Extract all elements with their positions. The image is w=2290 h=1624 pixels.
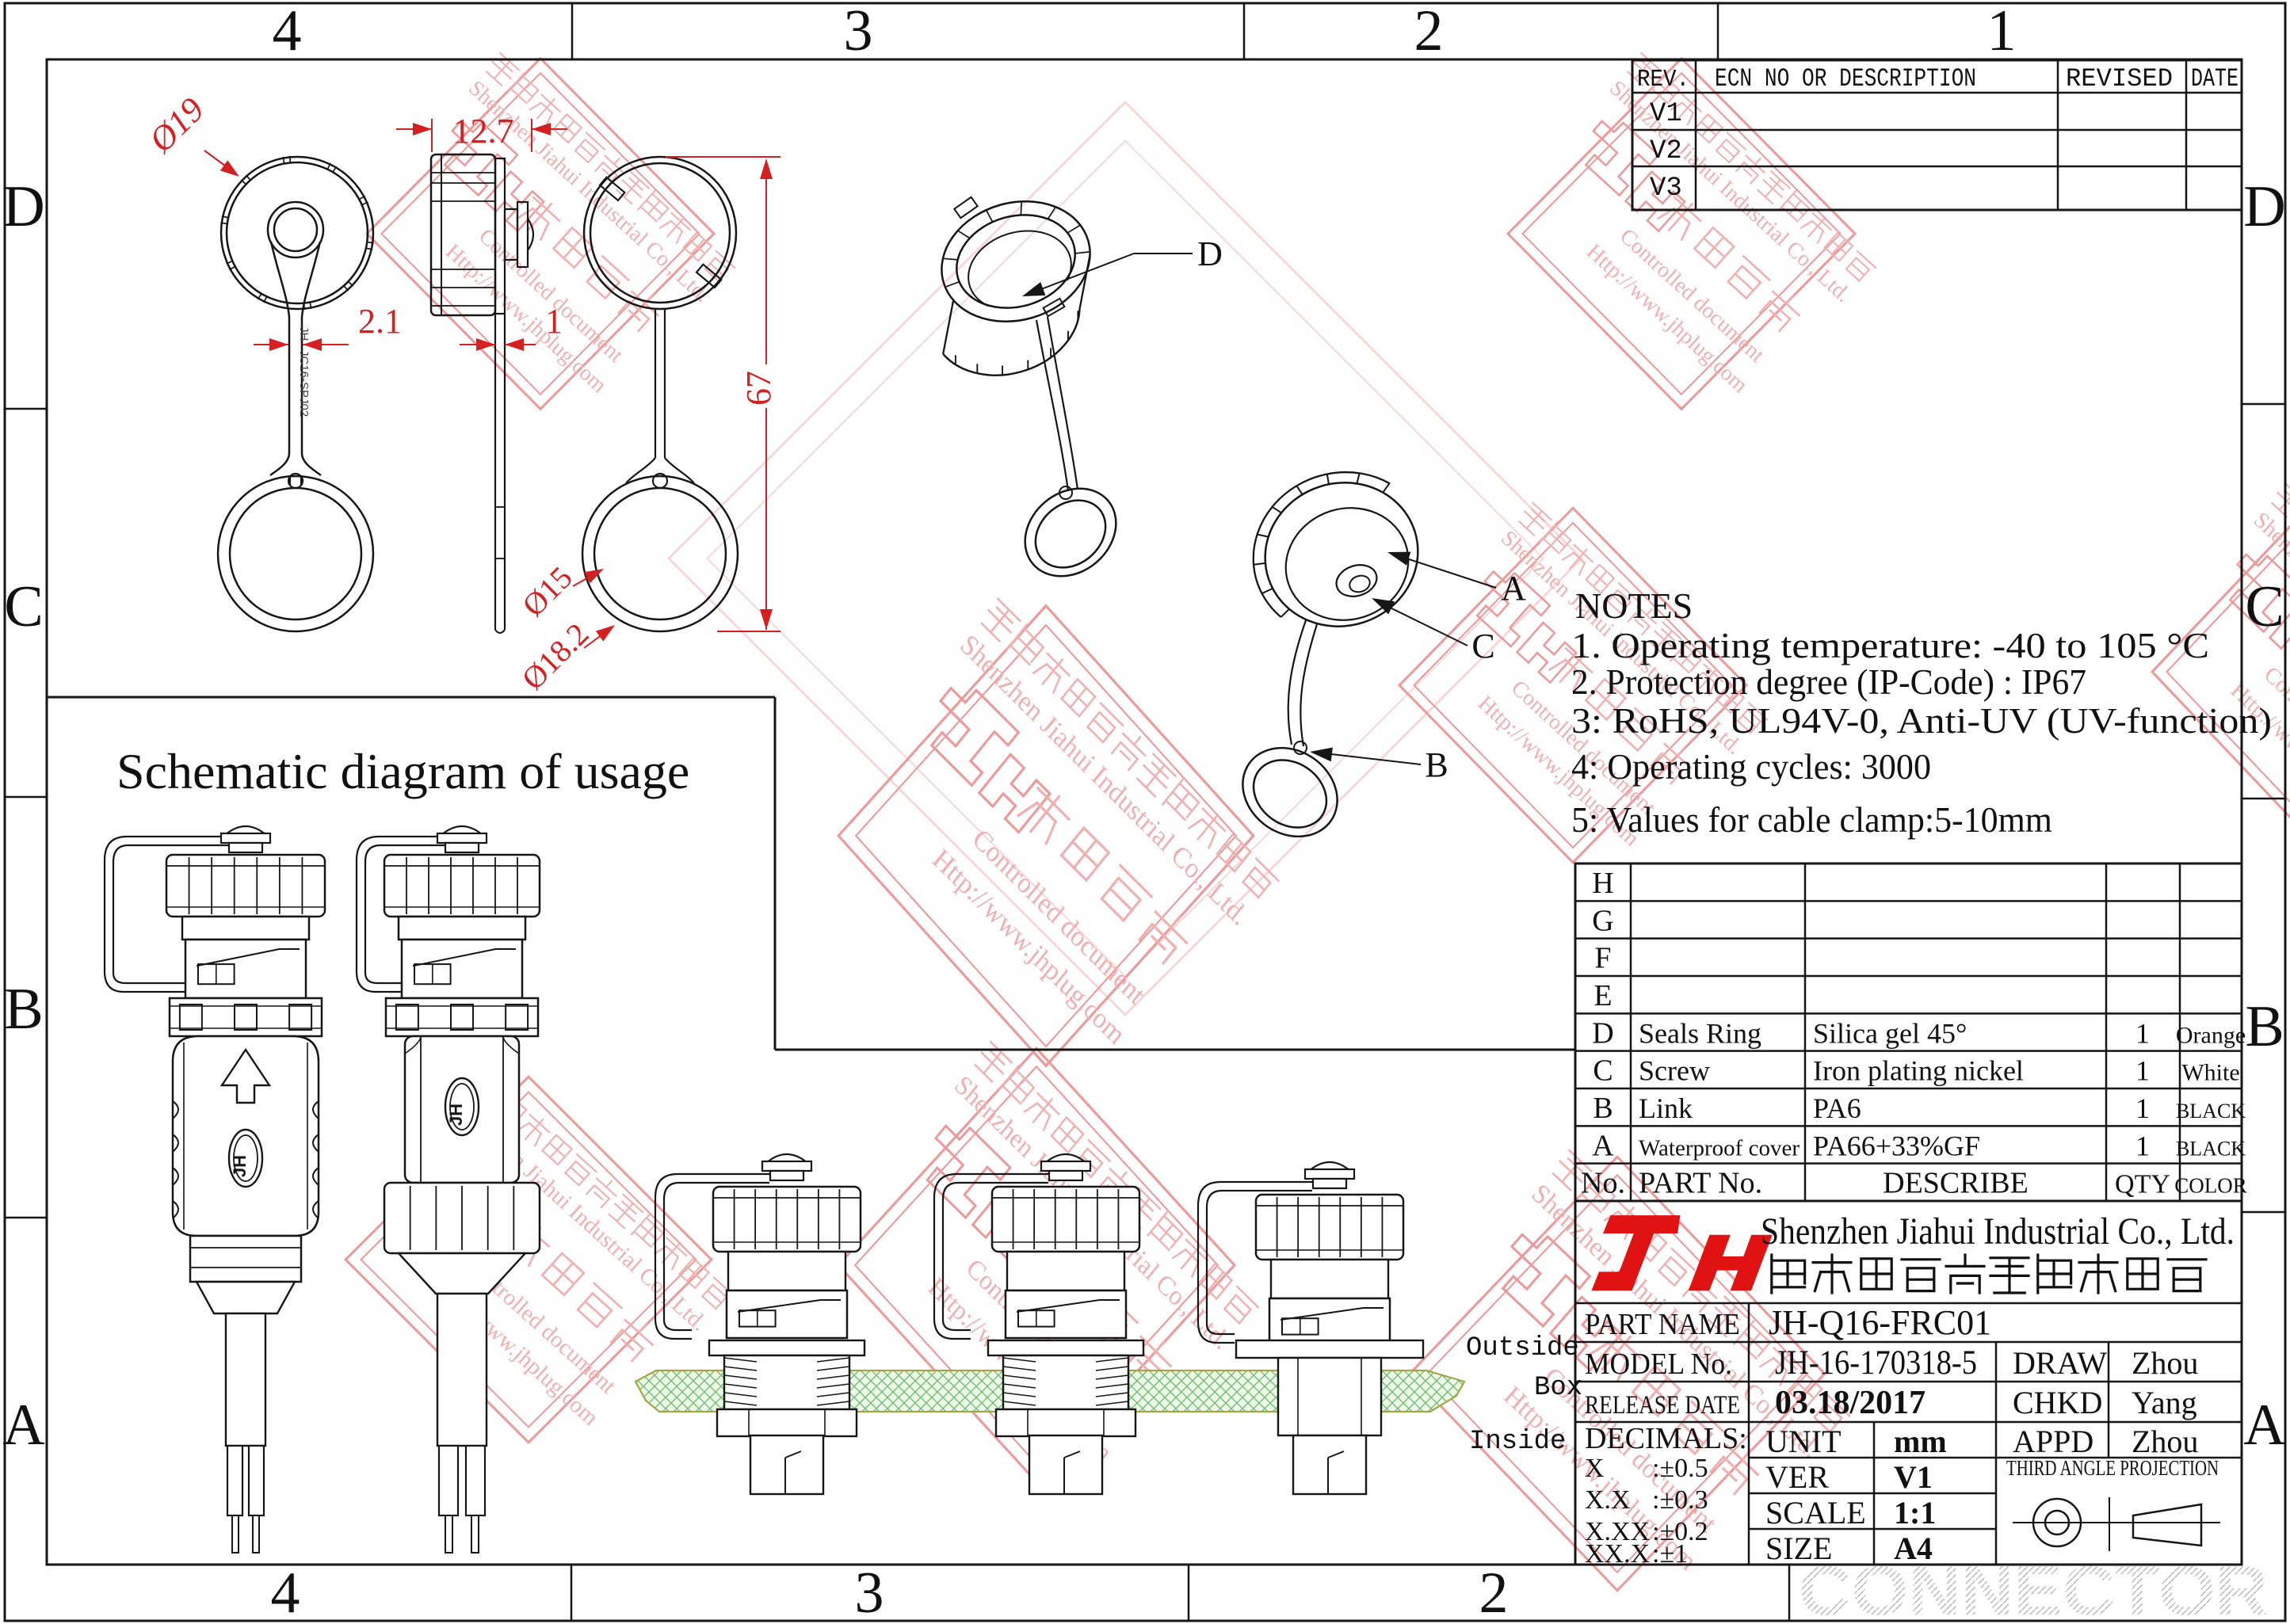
svg-text:JH-Q16-FRC01: JH-Q16-FRC01	[1769, 1303, 1991, 1342]
svg-text:JH: JH	[446, 1104, 466, 1126]
svg-text:D: D	[1197, 234, 1223, 273]
svg-text:Inside: Inside	[1469, 1427, 1566, 1457]
svg-text:PA66+33%GF: PA66+33%GF	[1813, 1130, 1980, 1161]
svg-text:CONNECTOR: CONNECTOR	[1799, 1551, 2268, 1624]
svg-text:C: C	[1593, 1054, 1613, 1088]
svg-text:X: X	[1585, 1454, 1605, 1483]
svg-text:THIRD ANGLE PROJECTION: THIRD ANGLE PROJECTION	[2006, 1456, 2219, 1480]
svg-text:1: 1	[545, 302, 563, 341]
svg-text:C: C	[1471, 627, 1494, 665]
svg-text:G: G	[1592, 904, 1613, 937]
svg-text:V3: V3	[1650, 173, 1682, 204]
svg-text:V1: V1	[1650, 99, 1682, 129]
svg-text:1: 1	[2135, 1017, 2150, 1049]
svg-text:5: Values for cable clamp:5-10: 5: Values for cable clamp:5-10mm	[1571, 800, 2052, 840]
svg-text:Box: Box	[1534, 1373, 1582, 1403]
svg-text:QTY: QTY	[2115, 1170, 2170, 1199]
svg-text:V1: V1	[1894, 1459, 1933, 1495]
svg-text:REV.: REV.	[1637, 66, 1689, 93]
svg-text:Seals Ring: Seals Ring	[1639, 1017, 1761, 1049]
svg-text:B: B	[1593, 1092, 1613, 1125]
svg-text::±0.3: :±0.3	[1652, 1485, 1708, 1515]
svg-text:3: 3	[855, 1561, 884, 1624]
svg-text:A: A	[1592, 1129, 1614, 1162]
svg-text:Schematic diagram of usage: Schematic diagram of usage	[116, 743, 689, 799]
svg-text:B: B	[1425, 745, 1448, 784]
svg-text:03.18/2017: 03.18/2017	[1775, 1385, 1926, 1421]
svg-text:Zhou: Zhou	[2132, 1424, 2198, 1459]
svg-text:No.: No.	[1581, 1167, 1625, 1200]
svg-text:C: C	[2245, 574, 2284, 639]
svg-text:F: F	[1594, 942, 1611, 975]
svg-text:PA6: PA6	[1813, 1092, 1861, 1124]
svg-text:4: Operating cycles: 3000: 4: Operating cycles: 3000	[1571, 747, 1931, 787]
svg-text:1: 1	[2135, 1130, 2150, 1161]
svg-text:2: 2	[1414, 0, 1444, 63]
svg-text:CHKD: CHKD	[2013, 1385, 2102, 1420]
svg-text:1:1: 1:1	[1894, 1495, 1936, 1531]
svg-text:4: 4	[271, 1561, 300, 1624]
svg-text:2: 2	[1479, 1561, 1509, 1624]
svg-text:PART NAME: PART NAME	[1585, 1308, 1740, 1341]
svg-text:VER: VER	[1765, 1459, 1829, 1495]
svg-text:A: A	[1501, 569, 1526, 608]
svg-text:Orange: Orange	[2176, 1022, 2246, 1048]
svg-text:3: RoHS, UL94V-0, Anti-UV (UV-: 3: RoHS, UL94V-0, Anti-UV (UV-function)	[1571, 701, 2272, 741]
svg-text:mm: mm	[1894, 1424, 1947, 1459]
svg-text:SCALE: SCALE	[1765, 1495, 1866, 1531]
svg-text:Shenzhen Jiahui Industrial Co.: Shenzhen Jiahui Industrial Co., Ltd.	[1761, 1210, 2235, 1252]
svg-text:SIZE: SIZE	[1765, 1531, 1832, 1566]
svg-text:RELEASE DATE: RELEASE DATE	[1585, 1391, 1740, 1420]
svg-text::±1: :±1	[1652, 1539, 1688, 1569]
svg-text:B: B	[2245, 994, 2284, 1059]
svg-text:Waterproof cover: Waterproof cover	[1639, 1135, 1800, 1161]
svg-text:DECIMALS:: DECIMALS:	[1585, 1422, 1747, 1455]
svg-text:2.1: 2.1	[358, 302, 402, 341]
svg-text:NOTES: NOTES	[1575, 585, 1693, 626]
svg-text:ECN NO OR DESCRIPTION: ECN NO OR DESCRIPTION	[1715, 64, 1976, 93]
svg-text:X.X: X.X	[1585, 1485, 1631, 1515]
svg-text:V2: V2	[1650, 136, 1682, 166]
svg-text:JH-16-170318-5: JH-16-170318-5	[1775, 1344, 1977, 1382]
svg-text:BLACK: BLACK	[2176, 1137, 2246, 1160]
svg-text:UNIT: UNIT	[1765, 1424, 1842, 1459]
svg-text:JC16-SPJ02: JC16-SPJ02	[297, 350, 311, 417]
svg-text:JH: JH	[230, 1155, 250, 1177]
svg-text:MODEL No.: MODEL No.	[1585, 1348, 1732, 1381]
svg-text:H: H	[1592, 867, 1613, 900]
svg-text:1: 1	[2135, 1092, 2150, 1124]
svg-text:DATE: DATE	[2191, 64, 2238, 93]
svg-text:4: 4	[273, 0, 302, 63]
svg-text:COLOR: COLOR	[2174, 1174, 2247, 1198]
svg-text:REVISED: REVISED	[2066, 64, 2173, 93]
svg-text:DESCRIBE: DESCRIBE	[1883, 1167, 2029, 1200]
svg-text:DRAW: DRAW	[2013, 1345, 2107, 1381]
svg-text:B: B	[4, 977, 43, 1042]
svg-text:C: C	[4, 574, 43, 639]
svg-text:1: 1	[1987, 0, 2017, 63]
svg-text:67: 67	[739, 371, 778, 406]
svg-text:D: D	[2, 174, 44, 239]
svg-text:12.7: 12.7	[453, 112, 514, 151]
svg-text:Iron plating nickel: Iron plating nickel	[1813, 1055, 2024, 1087]
svg-text:JH: JH	[297, 326, 311, 341]
svg-text:1: 1	[2135, 1055, 2150, 1087]
svg-text:E: E	[1593, 979, 1612, 1012]
svg-text:Silica gel 45°: Silica gel 45°	[1813, 1017, 1967, 1049]
svg-text:A4: A4	[1894, 1531, 1933, 1566]
svg-text:APPD: APPD	[2013, 1424, 2093, 1459]
svg-text:Yang: Yang	[2132, 1385, 2197, 1420]
svg-text::±0.5: :±0.5	[1652, 1454, 1708, 1483]
svg-text:PART No.: PART No.	[1639, 1167, 1762, 1200]
svg-text:2. Protection degree (IP-Code): 2. Protection degree (IP-Code) : IP67	[1571, 662, 2086, 702]
svg-text:White: White	[2181, 1060, 2239, 1086]
svg-text:D: D	[2243, 174, 2285, 239]
svg-text:1. Operating temperature: -40: 1. Operating temperature: -40 to 105 °C	[1571, 626, 2209, 665]
svg-text:D: D	[1592, 1016, 1613, 1050]
svg-text:Outside: Outside	[1466, 1333, 1579, 1363]
svg-text:XX.X: XX.X	[1585, 1539, 1650, 1569]
svg-text:A: A	[2243, 1393, 2285, 1458]
svg-text:A: A	[2, 1393, 44, 1458]
svg-text:Screw: Screw	[1639, 1055, 1710, 1087]
svg-text:Link: Link	[1639, 1092, 1693, 1124]
svg-text:Zhou: Zhou	[2132, 1345, 2198, 1381]
svg-text:BLACK: BLACK	[2176, 1100, 2246, 1123]
svg-text:3: 3	[844, 0, 873, 63]
